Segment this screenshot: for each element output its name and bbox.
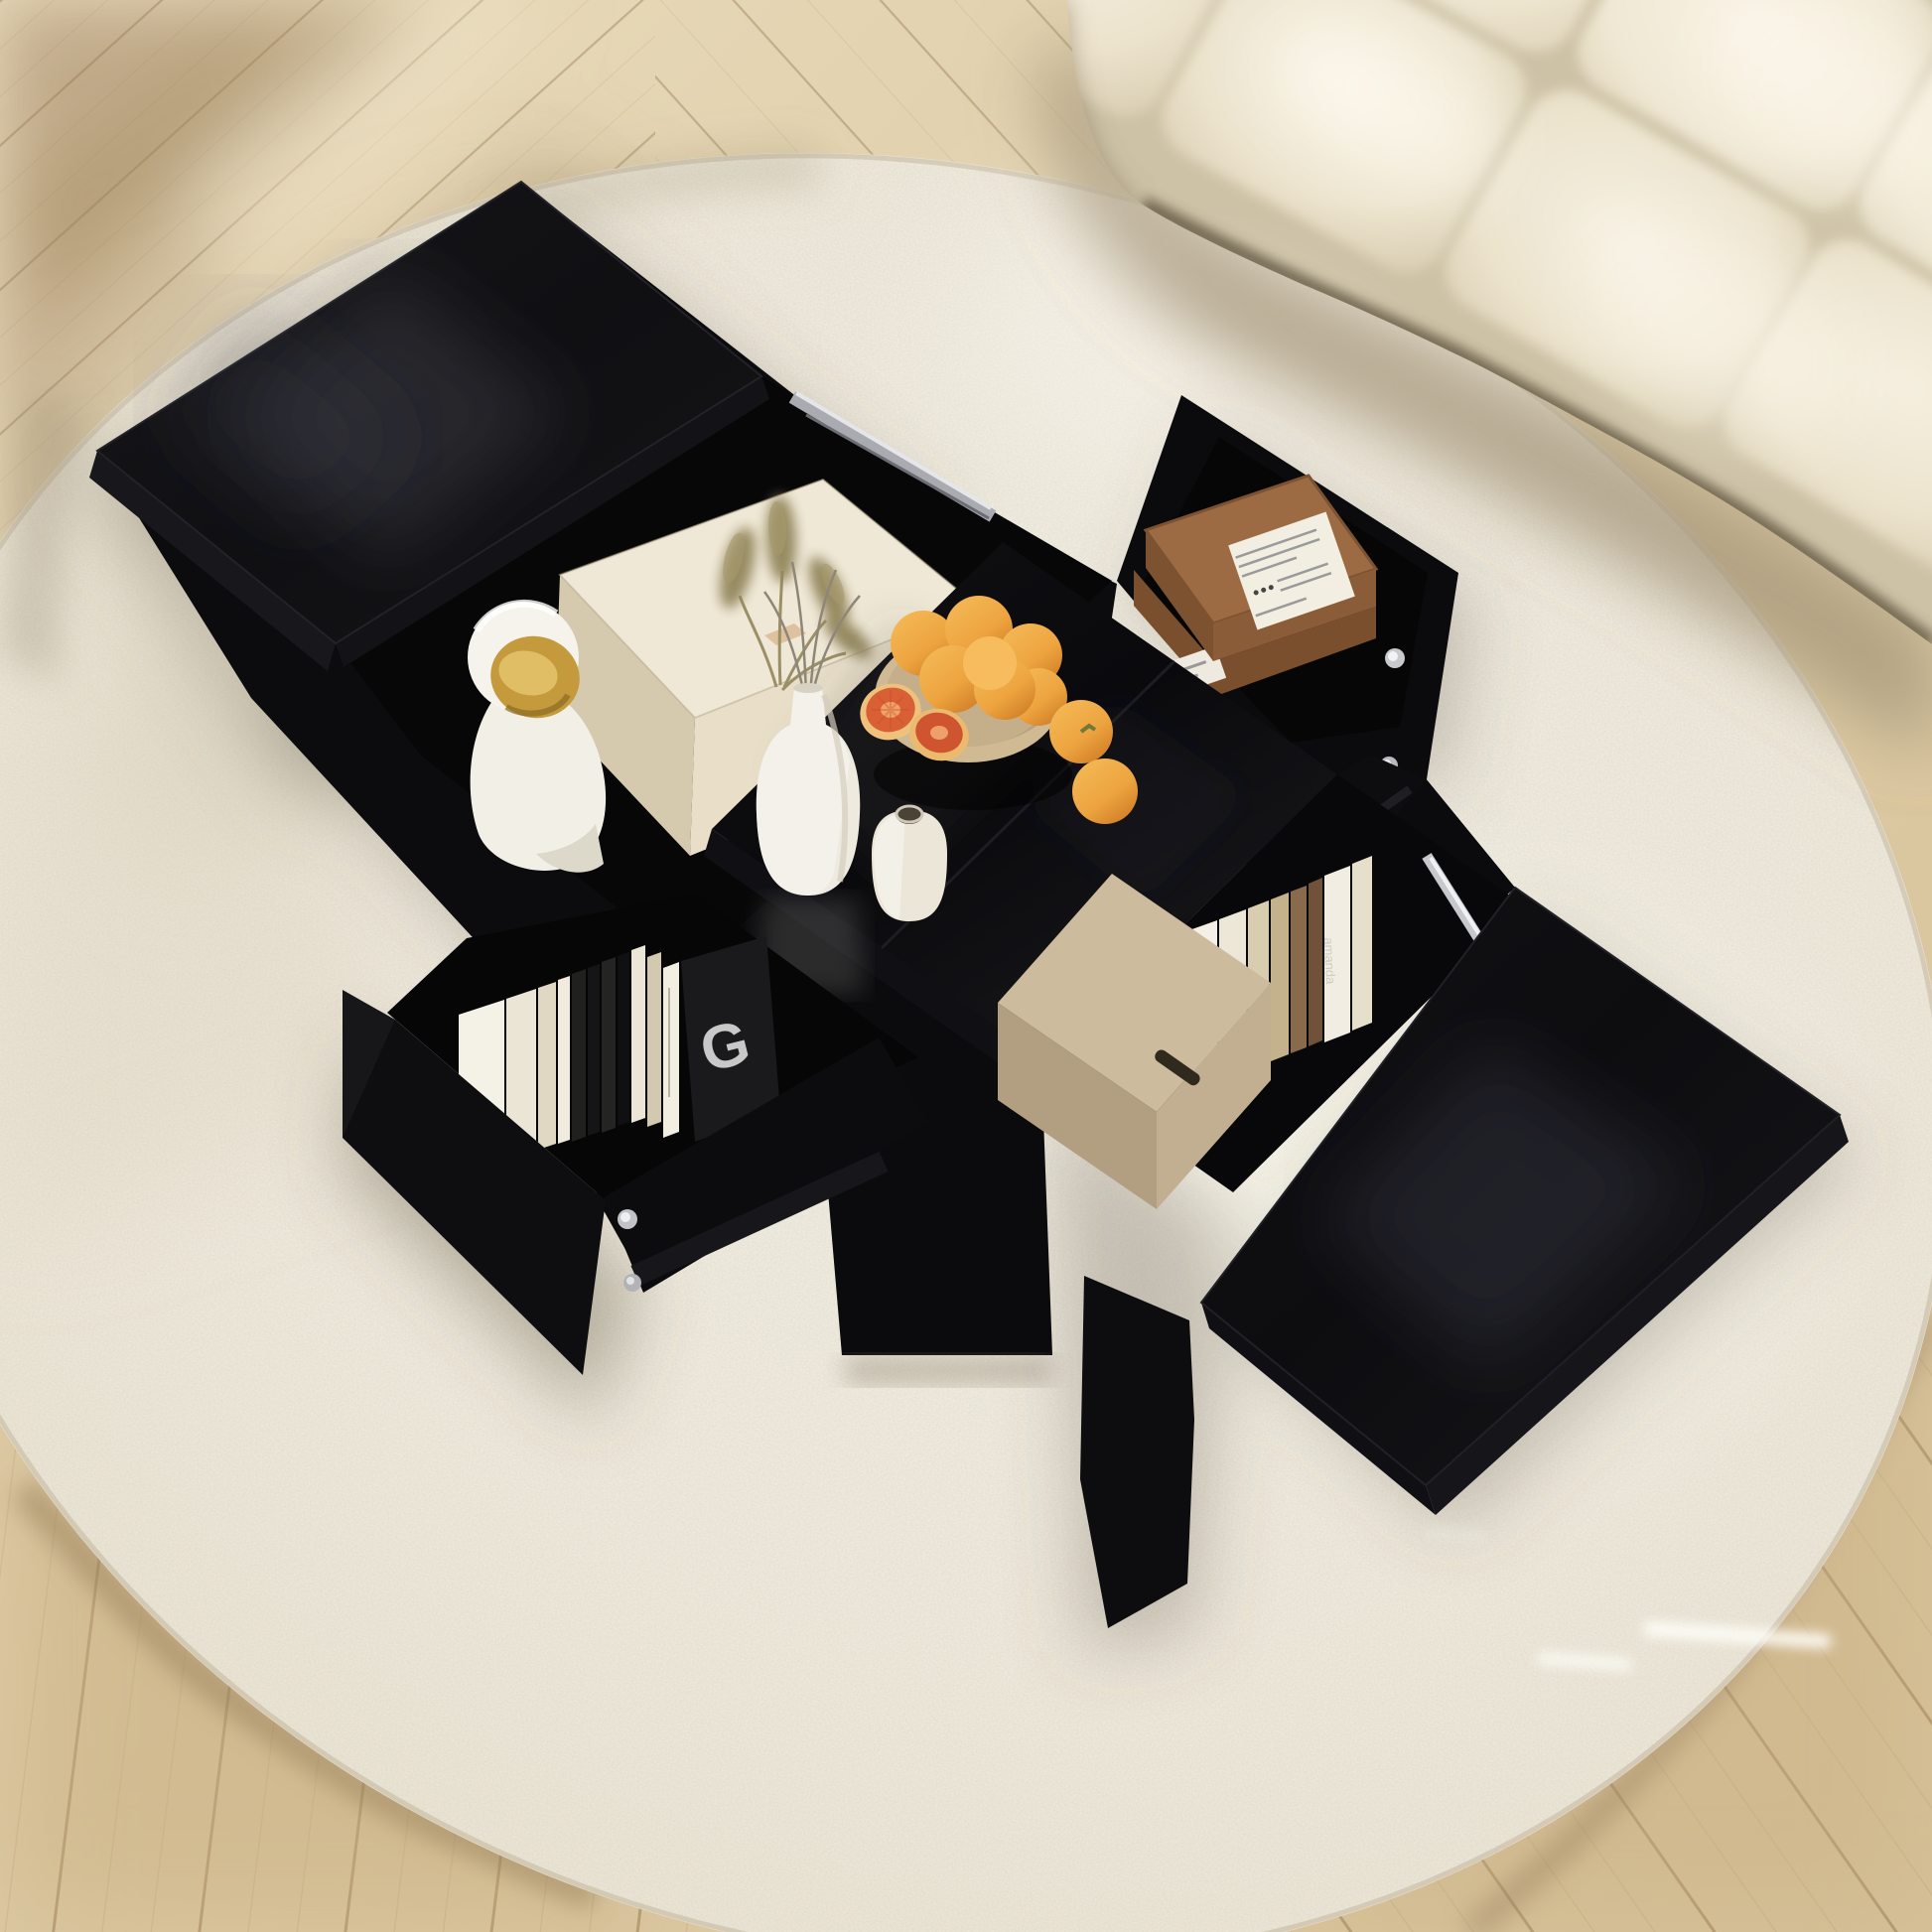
svg-text:amanda: amanda: [1321, 937, 1338, 985]
